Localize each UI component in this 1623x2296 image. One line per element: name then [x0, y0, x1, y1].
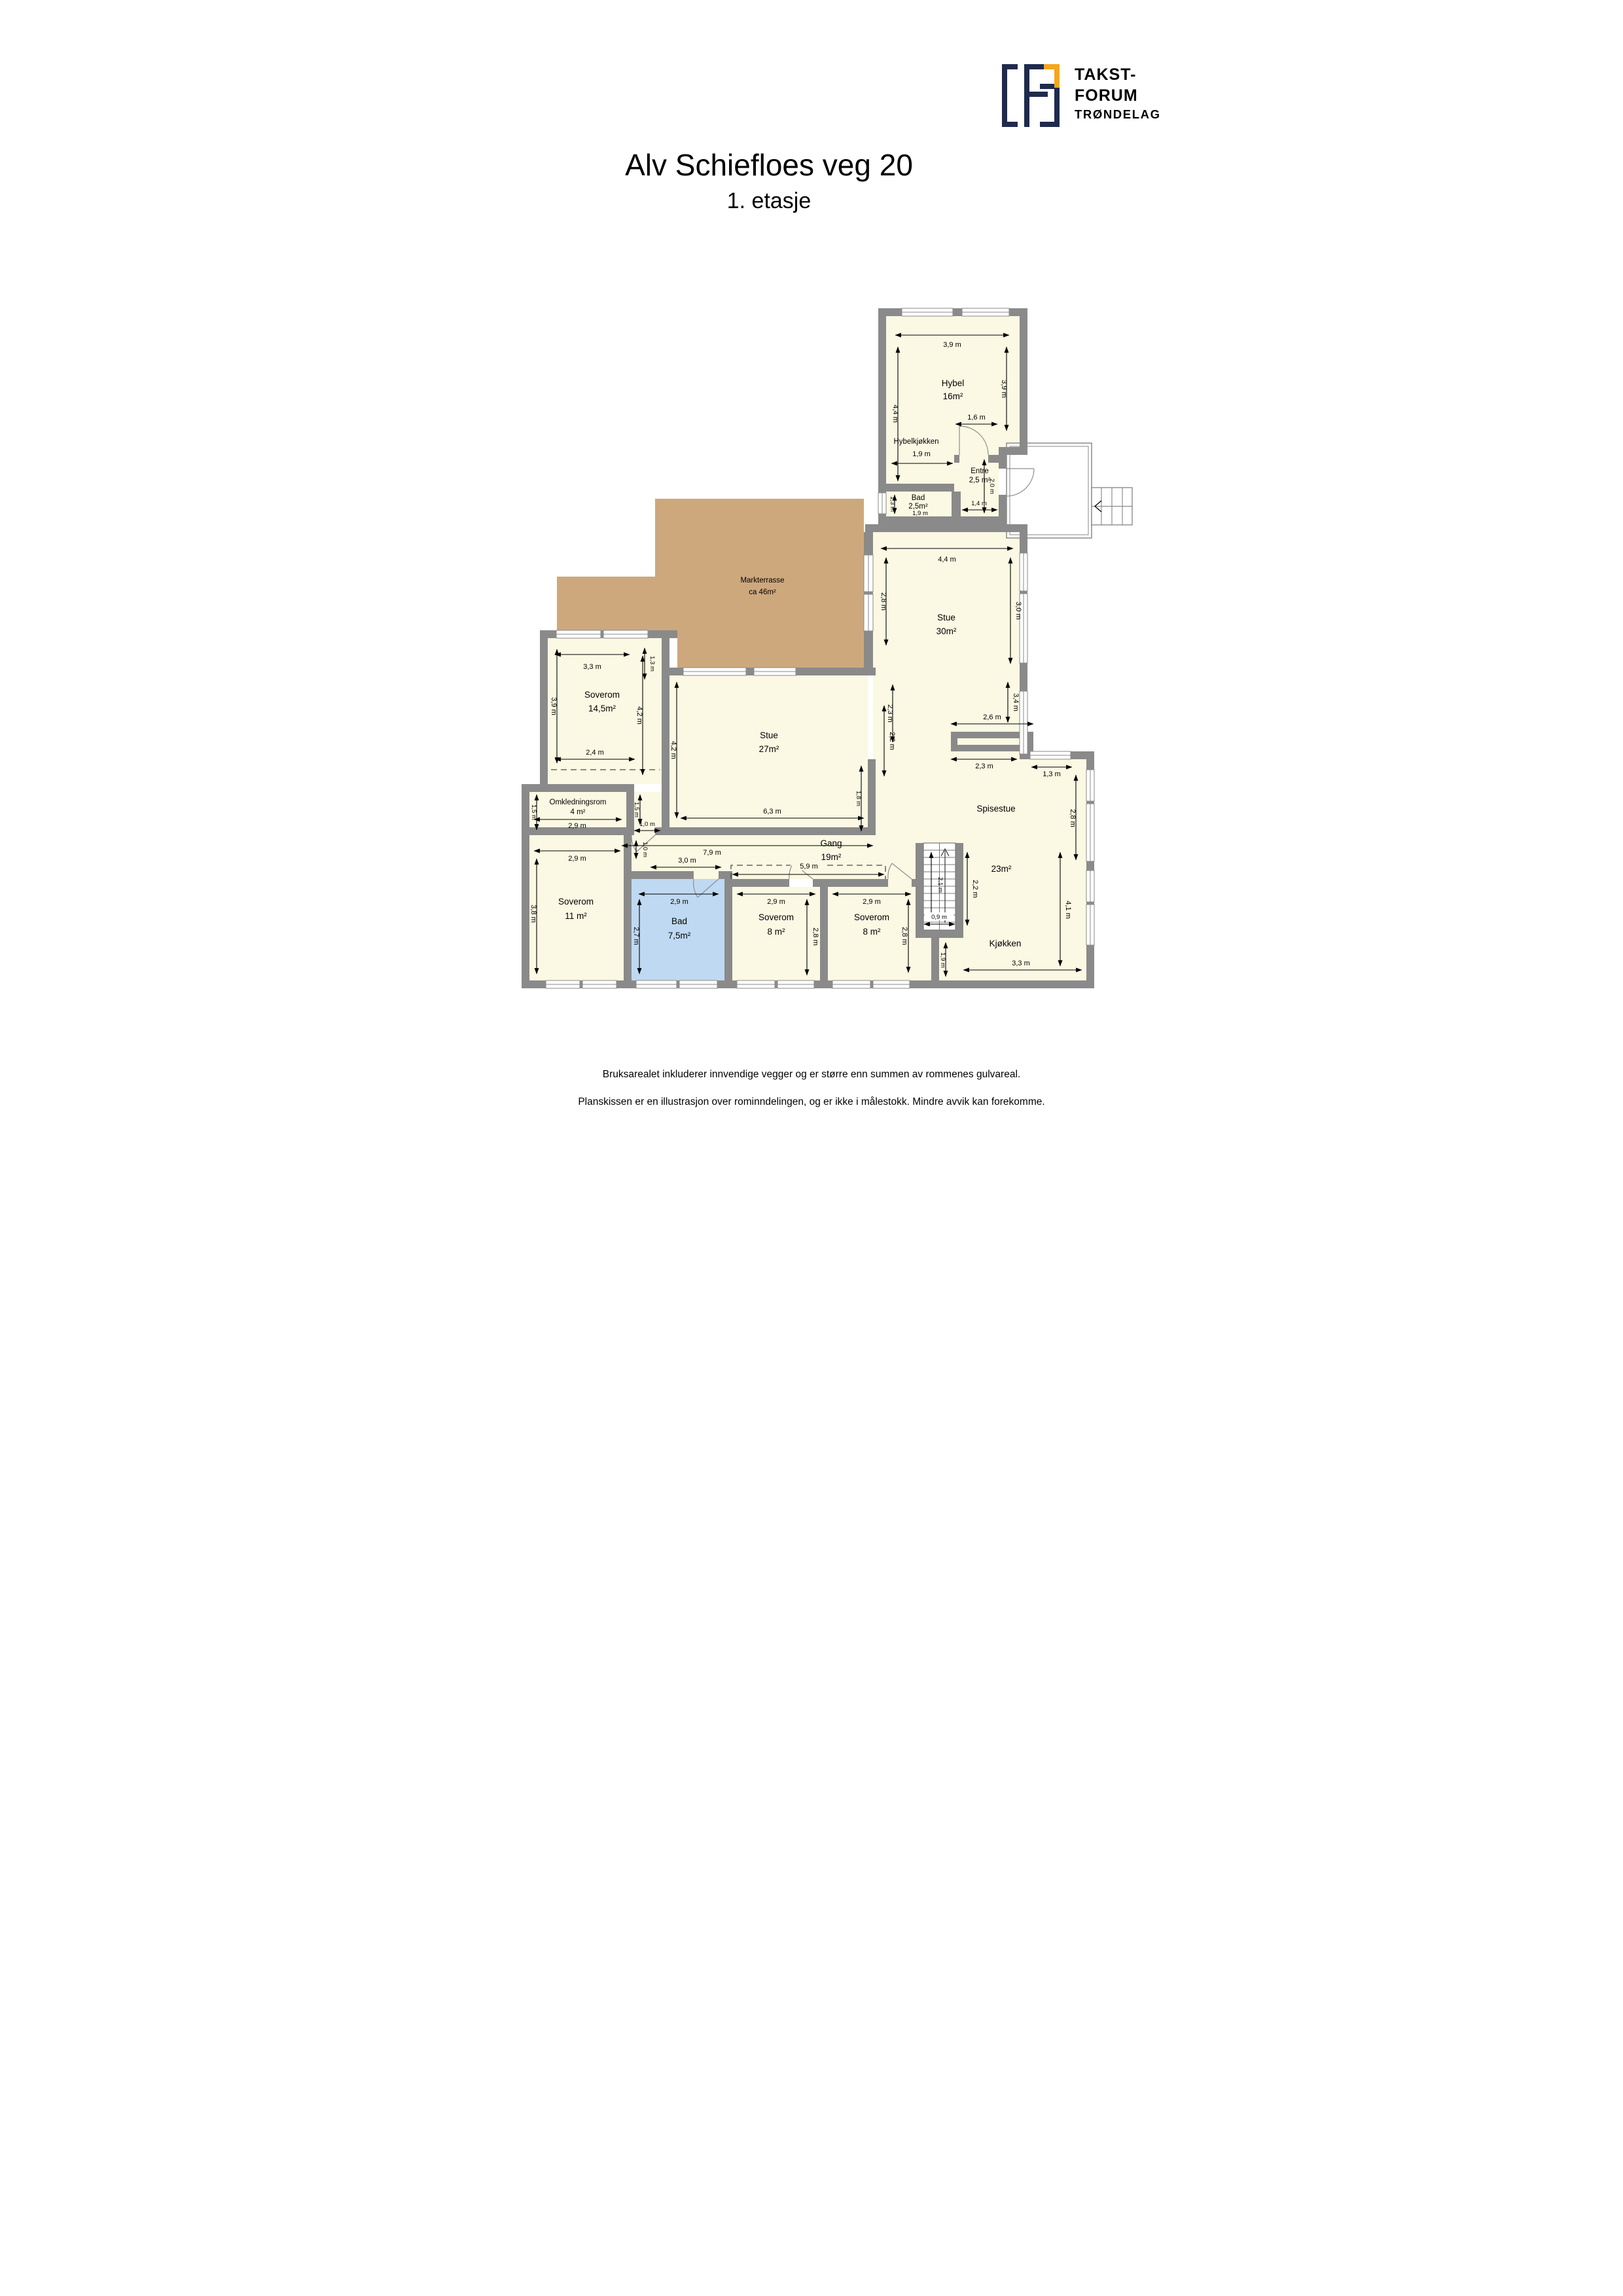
dim-label: 4,4 m: [891, 404, 899, 423]
room-area-bad75: 7,5m²: [668, 931, 691, 941]
room-label-bad1: Bad: [912, 494, 925, 502]
dim-label: 6,3 m: [763, 808, 781, 816]
logo-line2: FORUM: [1075, 86, 1138, 105]
room-area-bad1: 2,5m²: [908, 503, 928, 511]
room-area-entre: 2,5 m²: [969, 476, 991, 484]
room-label-soverom145: Soverom: [584, 690, 620, 700]
takstforum-logo-icon: [1002, 64, 1060, 127]
footer-line1: Bruksarealet inkluderer innvendige vegge…: [603, 1069, 1020, 1080]
dim-label: 3,9 m: [943, 341, 961, 349]
dim-label: 3,9 m: [550, 697, 558, 715]
dim-label: 3,3 m: [583, 663, 601, 671]
room-area-soverom8a: 8 m²: [768, 927, 786, 937]
dim-label: 3,3 m: [1012, 960, 1030, 967]
dim-label: 2,9 m: [767, 898, 785, 906]
dim-label: 2,9 m: [568, 822, 586, 830]
dim-label: 1,8 m: [855, 791, 862, 806]
dim-label: 4,1 m: [1064, 901, 1072, 919]
dim-label: 1,3 m: [649, 656, 656, 672]
page-title: Alv Schiefloes veg 20: [625, 148, 913, 182]
dim-label: 2,8 m: [880, 592, 887, 611]
dim-label: 2,9 m: [568, 855, 586, 863]
room-area-omkledningsrom: 4 m²: [571, 808, 586, 816]
dim-label: 1,5 m: [530, 804, 537, 820]
room-label-spisestue: Spisestue: [976, 804, 1015, 814]
footer-line2: Planskissen er en illustrasjon over romi…: [578, 1096, 1044, 1107]
room-label-soverom11: Soverom: [558, 897, 594, 906]
dim-label: 2,8 m: [901, 927, 908, 945]
room-label-entre: Entre: [971, 467, 989, 475]
room-area-soverom145: 14,5m²: [588, 704, 616, 713]
dim-label: 2,4 m: [586, 749, 604, 757]
room-area-gang: 19m²: [821, 852, 842, 862]
room-area-open23: 23m²: [991, 864, 1012, 874]
dim-label: 1,3 m: [1043, 770, 1061, 778]
takstforum-logo-text: TAKST- FORUM TRØNDELAG: [1075, 65, 1161, 121]
dim-label: 2,7 m: [632, 927, 640, 945]
room-label-omkledningsrom: Omkledningsrom: [550, 798, 607, 806]
dim-label: 3,0 m: [1014, 601, 1022, 620]
dim-label: 1,5 m: [633, 802, 640, 817]
room-label-soverom8b: Soverom: [854, 912, 889, 922]
room-label-kjokken: Kjøkken: [990, 939, 1022, 948]
room-label-markterrasse: Markterrasse: [740, 577, 784, 584]
dim-label: 4,2 m: [669, 741, 677, 759]
floorplan-canvas: TAKST- FORUM TRØNDELAG Alv Schiefloes ve…: [406, 0, 1217, 1148]
dim-label: 3,8 m: [529, 905, 537, 923]
dim-label: 1,0 m: [639, 821, 655, 828]
dim-label: 2,1 m: [936, 877, 944, 893]
dim-label: 1,3 m: [889, 496, 896, 512]
logo-line1: TAKST-: [1075, 65, 1136, 84]
dim-label: 5,9 m: [800, 863, 818, 870]
dim-label: 2,9 m: [863, 898, 881, 906]
dim-label: 2,6 m: [983, 713, 1001, 721]
outdoor-stair: [1092, 488, 1132, 525]
room-label-stue27: Stue: [760, 730, 778, 740]
dim-label: 1,9 m: [939, 952, 946, 968]
room-label-bad75: Bad: [671, 916, 687, 926]
dim-label: 0,9 m: [931, 914, 947, 921]
room-area-soverom8b: 8 m²: [863, 927, 882, 937]
room-label-stue30: Stue: [937, 613, 955, 622]
room-fills: [529, 316, 1086, 980]
dim-label: 3,0 m: [678, 857, 696, 865]
room-label-soverom8a: Soverom: [758, 912, 794, 922]
fireplace-core: [957, 738, 1027, 745]
room-area-stue30: 30m²: [936, 626, 957, 636]
room-label-hybel: Hybel: [942, 378, 965, 388]
dim-label: 3,4 m: [1012, 693, 1020, 711]
dim-label: 2,3 m: [975, 762, 993, 770]
room-area-markterrasse: ca 46m²: [749, 588, 776, 596]
dim-label: 1,0 m: [641, 842, 649, 857]
entrance-porch: [1007, 443, 1132, 538]
room-label-hybelkjokken: Hybelkjøkken: [893, 438, 938, 446]
dim-label: 1,6 m: [967, 414, 986, 422]
dim-label: 2,9 m: [670, 898, 688, 906]
dim-label: 4,2 m: [635, 706, 643, 725]
dim-label: 1,9 m: [912, 510, 928, 517]
dim-label: 4,4 m: [938, 556, 956, 564]
floorplan-page: TAKST- FORUM TRØNDELAG Alv Schiefloes ve…: [406, 0, 1217, 1148]
page-subtitle: 1. etasje: [727, 188, 811, 213]
dim-label: 2,3 m: [886, 704, 894, 723]
room-label-gang: Gang: [820, 838, 842, 848]
dim-label: 3,9 m: [1000, 380, 1008, 398]
logo-line3: TRØNDELAG: [1075, 107, 1161, 121]
dim-label: 2,8 m: [811, 927, 819, 946]
dim-label: 2,8 m: [1069, 809, 1077, 827]
dim-label: 1,9 m: [912, 450, 931, 458]
dim-label: 2,2 m: [971, 880, 979, 898]
room-area-soverom11: 11 m²: [565, 911, 587, 921]
room-area-hybel: 16m²: [943, 391, 963, 401]
dim-label: 7,9 m: [703, 849, 721, 857]
dim-label: 2,2 m: [888, 732, 896, 750]
dim-label: 1,4 m: [971, 500, 987, 507]
room-area-stue27: 27m²: [759, 744, 779, 754]
